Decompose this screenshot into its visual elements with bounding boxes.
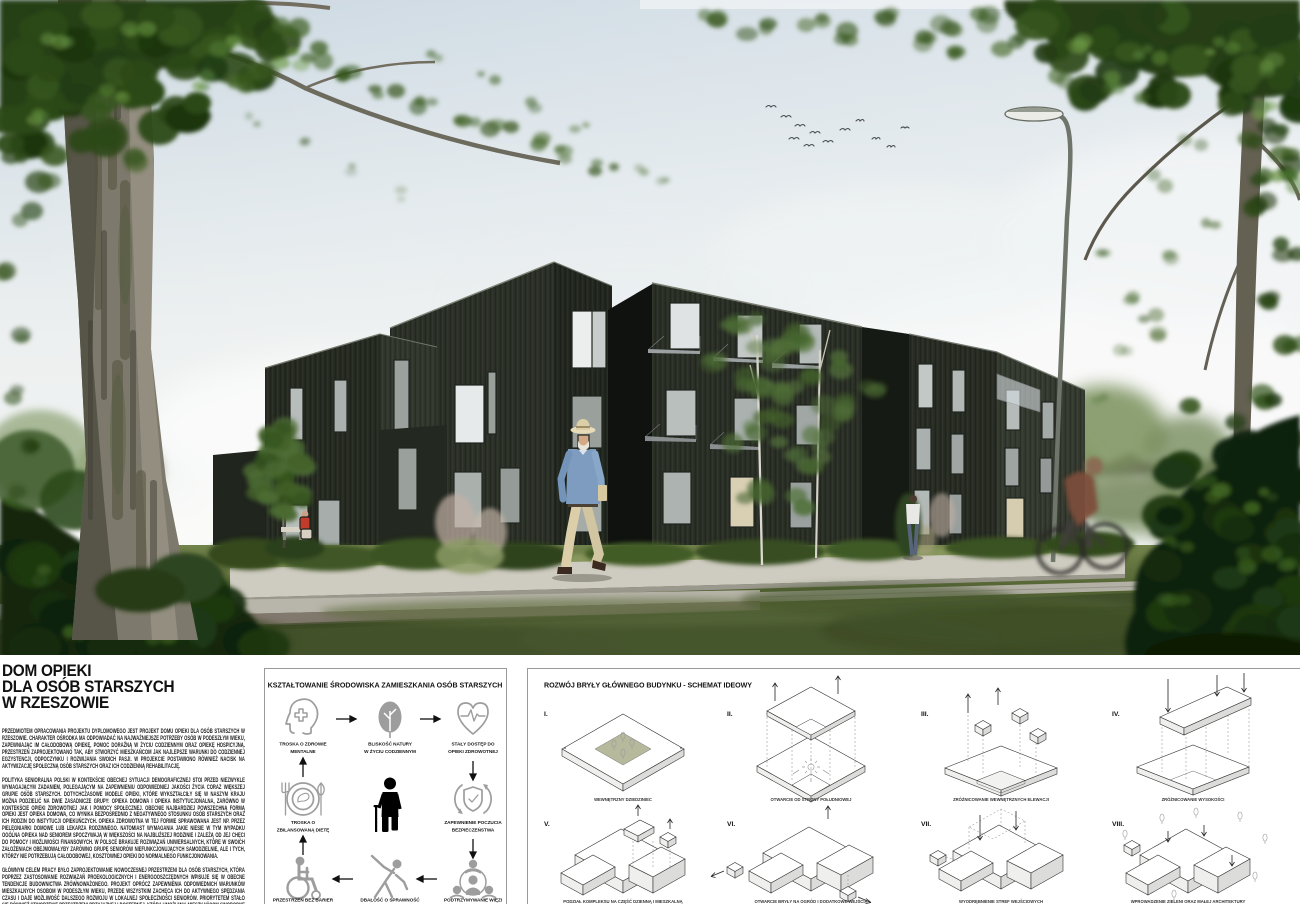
svg-text:ZRÓŻNICOWANIE WEWNĘTRZNYCH ELE: ZRÓŻNICOWANIE WEWNĘTRZNYCH ELEWACJI [953, 797, 1049, 802]
svg-text:VIII.: VIII. [1112, 821, 1124, 828]
svg-text:TROSKA O ZDROWIE: TROSKA O ZDROWIE [279, 742, 326, 747]
svg-text:ZBILANSOWANĄ DIETĘ: ZBILANSOWANĄ DIETĘ [277, 828, 330, 833]
svg-text:ROZWÓJ BRYŁY GŁÓWNEGO BUDYNKU: ROZWÓJ BRYŁY GŁÓWNEGO BUDYNKU - SCHEMAT … [544, 681, 752, 690]
svg-text:WPROWADZENIE ZIELENI ORAZ MAŁE: WPROWADZENIE ZIELENI ORAZ MAŁEJ ARCHITEK… [1131, 899, 1246, 904]
svg-text:MENTALNE: MENTALNE [290, 749, 315, 754]
svg-text:III.: III. [921, 711, 929, 718]
svg-text:W ŻYCIU CODZIENNYM: W ŻYCIU CODZIENNYM [364, 748, 416, 754]
svg-text:VII.: VII. [921, 821, 931, 828]
svg-text:PRZESTRZEŃ BEZ BARIER: PRZESTRZEŃ BEZ BARIER [273, 896, 334, 903]
svg-text:TROSKA O: TROSKA O [291, 820, 316, 825]
svg-text:ZAPEWNIENIE POCZUCIA: ZAPEWNIENIE POCZUCIA [444, 820, 502, 825]
svg-text:PODZIAŁ KOMPLEKSU NA CZĘŚĆ DZI: PODZIAŁ KOMPLEKSU NA CZĘŚĆ DZIENNĄ I MIE… [563, 899, 682, 904]
svg-text:BEZPIECZEŃSTWA: BEZPIECZEŃSTWA [452, 826, 495, 833]
svg-text:V.: V. [544, 821, 550, 828]
svg-text:ZRÓŻNICOWANIE WYSOKOŚCI: ZRÓŻNICOWANIE WYSOKOŚCI [1162, 797, 1225, 802]
svg-text:OPIEKI ZDROWOTNEJ: OPIEKI ZDROWOTNEJ [448, 749, 498, 754]
svg-text:OTWARCIE BRYŁY NA OGRÓD I DODA: OTWARCIE BRYŁY NA OGRÓD I DODATKOWE WEJŚ… [754, 899, 867, 904]
svg-text:KSZTAŁTOWANIE ŚRODOWISKA ZAMIE: KSZTAŁTOWANIE ŚRODOWISKA ZAMIESZKANIA OS… [268, 681, 503, 690]
svg-text:VI.: VI. [727, 821, 735, 828]
svg-text:I.: I. [544, 711, 548, 718]
svg-text:STAŁY DOSTĘP DO: STAŁY DOSTĘP DO [451, 742, 494, 747]
svg-text:BLISKOŚĆ NATURY: BLISKOŚĆ NATURY [368, 740, 413, 747]
svg-text:II.: II. [727, 711, 733, 718]
svg-text:IV.: IV. [1112, 711, 1120, 718]
svg-text:WEWNĘTRZNY DZIEDZINIEC: WEWNĘTRZNY DZIEDZINIEC [594, 797, 652, 802]
svg-text:DBAŁOŚĆ O SPRAWNOŚĆ: DBAŁOŚĆ O SPRAWNOŚĆ [360, 896, 420, 903]
svg-text:PODTRZYMYWANIE WIĘZI: PODTRZYMYWANIE WIĘZI [444, 898, 502, 903]
svg-text:OTWARCIE OD STRONY POŁUDNIOWEJ: OTWARCIE OD STRONY POŁUDNIOWEJ [771, 797, 853, 802]
svg-text:WYODRĘBNIENIE STREF WEJŚCIOWYC: WYODRĘBNIENIE STREF WEJŚCIOWYCH [959, 899, 1043, 904]
